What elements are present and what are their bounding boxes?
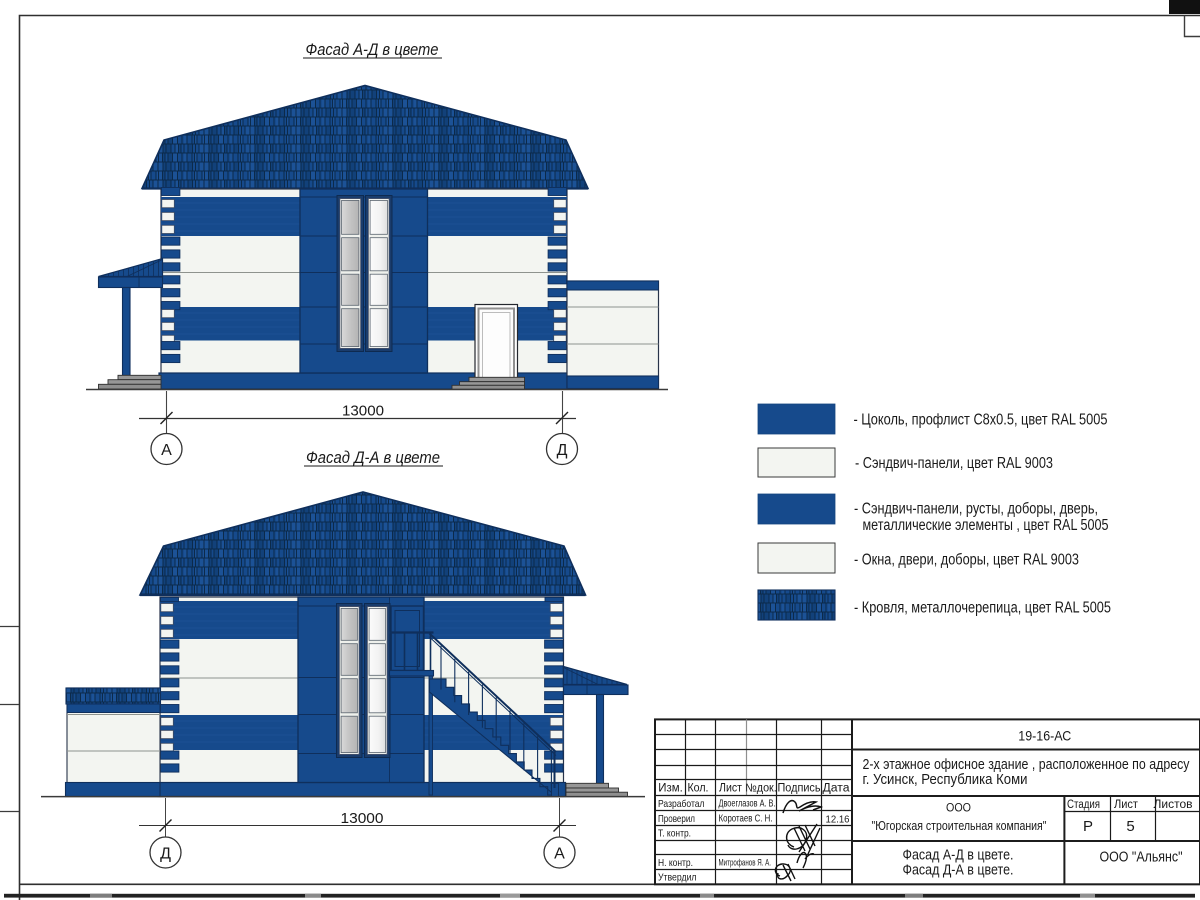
svg-text:12.16: 12.16 [826,814,850,826]
svg-text:ООО "Альянс": ООО "Альянс" [1100,850,1183,866]
svg-text:Утвердил: Утвердил [658,872,697,884]
svg-text:Митрофанов Я. А.: Митрофанов Я. А. [719,858,772,869]
svg-text:Фасад А-Д в цвете.: Фасад А-Д в цвете. [903,848,1014,864]
svg-text:Лист: Лист [1114,799,1139,811]
svg-text:Р: Р [1083,818,1093,835]
svg-text:Дата: Дата [823,783,851,795]
svg-text:Лист: Лист [719,783,743,795]
svg-text:Кол.: Кол. [688,783,709,795]
svg-text:Д: Д [557,442,568,459]
svg-text:- Сэндвич-панели, цвет RAL 900: - Сэндвич-панели, цвет RAL 9003 [855,455,1053,472]
svg-text:металлические элементы , цвет: металлические элементы , цвет RAL 5005 [863,517,1109,534]
svg-text:Коротаев С. Н.: Коротаев С. Н. [719,814,773,825]
svg-text:Проверил: Проверил [658,813,695,825]
svg-text:Двоеглазов А. В.: Двоеглазов А. В. [719,799,776,810]
svg-text:- Окна, двери, доборы, цвет RA: - Окна, двери, доборы, цвет RAL 9003 [854,552,1079,569]
svg-text:№док.: №док. [745,783,777,795]
svg-text:5: 5 [1126,818,1134,835]
svg-text:Разработал: Разработал [658,798,705,810]
svg-text:- Сэндвич-панели, русты, добор: - Сэндвич-панели, русты, доборы, дверь, [854,501,1098,518]
svg-text:г. Усинск, Республика Коми: г. Усинск, Республика Коми [863,771,1028,788]
svg-text:Фасад Д-А в цвете: Фасад Д-А в цвете [306,449,440,467]
svg-text:А: А [161,442,172,459]
svg-text:А: А [554,846,565,863]
svg-text:Листов: Листов [1154,799,1193,811]
svg-text:Подпись: Подпись [778,783,821,795]
svg-text:Стадия: Стадия [1067,799,1100,811]
svg-text:Н. контр.: Н. контр. [658,857,693,869]
svg-text:Д: Д [160,846,171,863]
svg-text:"Югорская строительная компани: "Югорская строительная компания" [872,819,1047,833]
svg-text:13000: 13000 [341,810,384,827]
svg-text:ООО: ООО [946,801,971,815]
svg-text:Т. контр.: Т. контр. [658,828,691,840]
svg-text:Фасад Д-А в цвете.: Фасад Д-А в цвете. [903,863,1014,879]
svg-text:- Кровля, металлочерепица, цве: - Кровля, металлочерепица, цвет RAL 5005 [854,600,1111,617]
svg-text:13000: 13000 [342,403,384,420]
svg-text:Фасад А-Д в цвете: Фасад А-Д в цвете [306,41,439,59]
svg-text:Изм.: Изм. [658,783,683,795]
svg-text:- Цоколь, профлист С8х0.5, цве: - Цоколь, профлист С8х0.5, цвет RAL 5005 [854,412,1108,429]
svg-text:19-16-АС: 19-16-АС [1018,728,1071,744]
